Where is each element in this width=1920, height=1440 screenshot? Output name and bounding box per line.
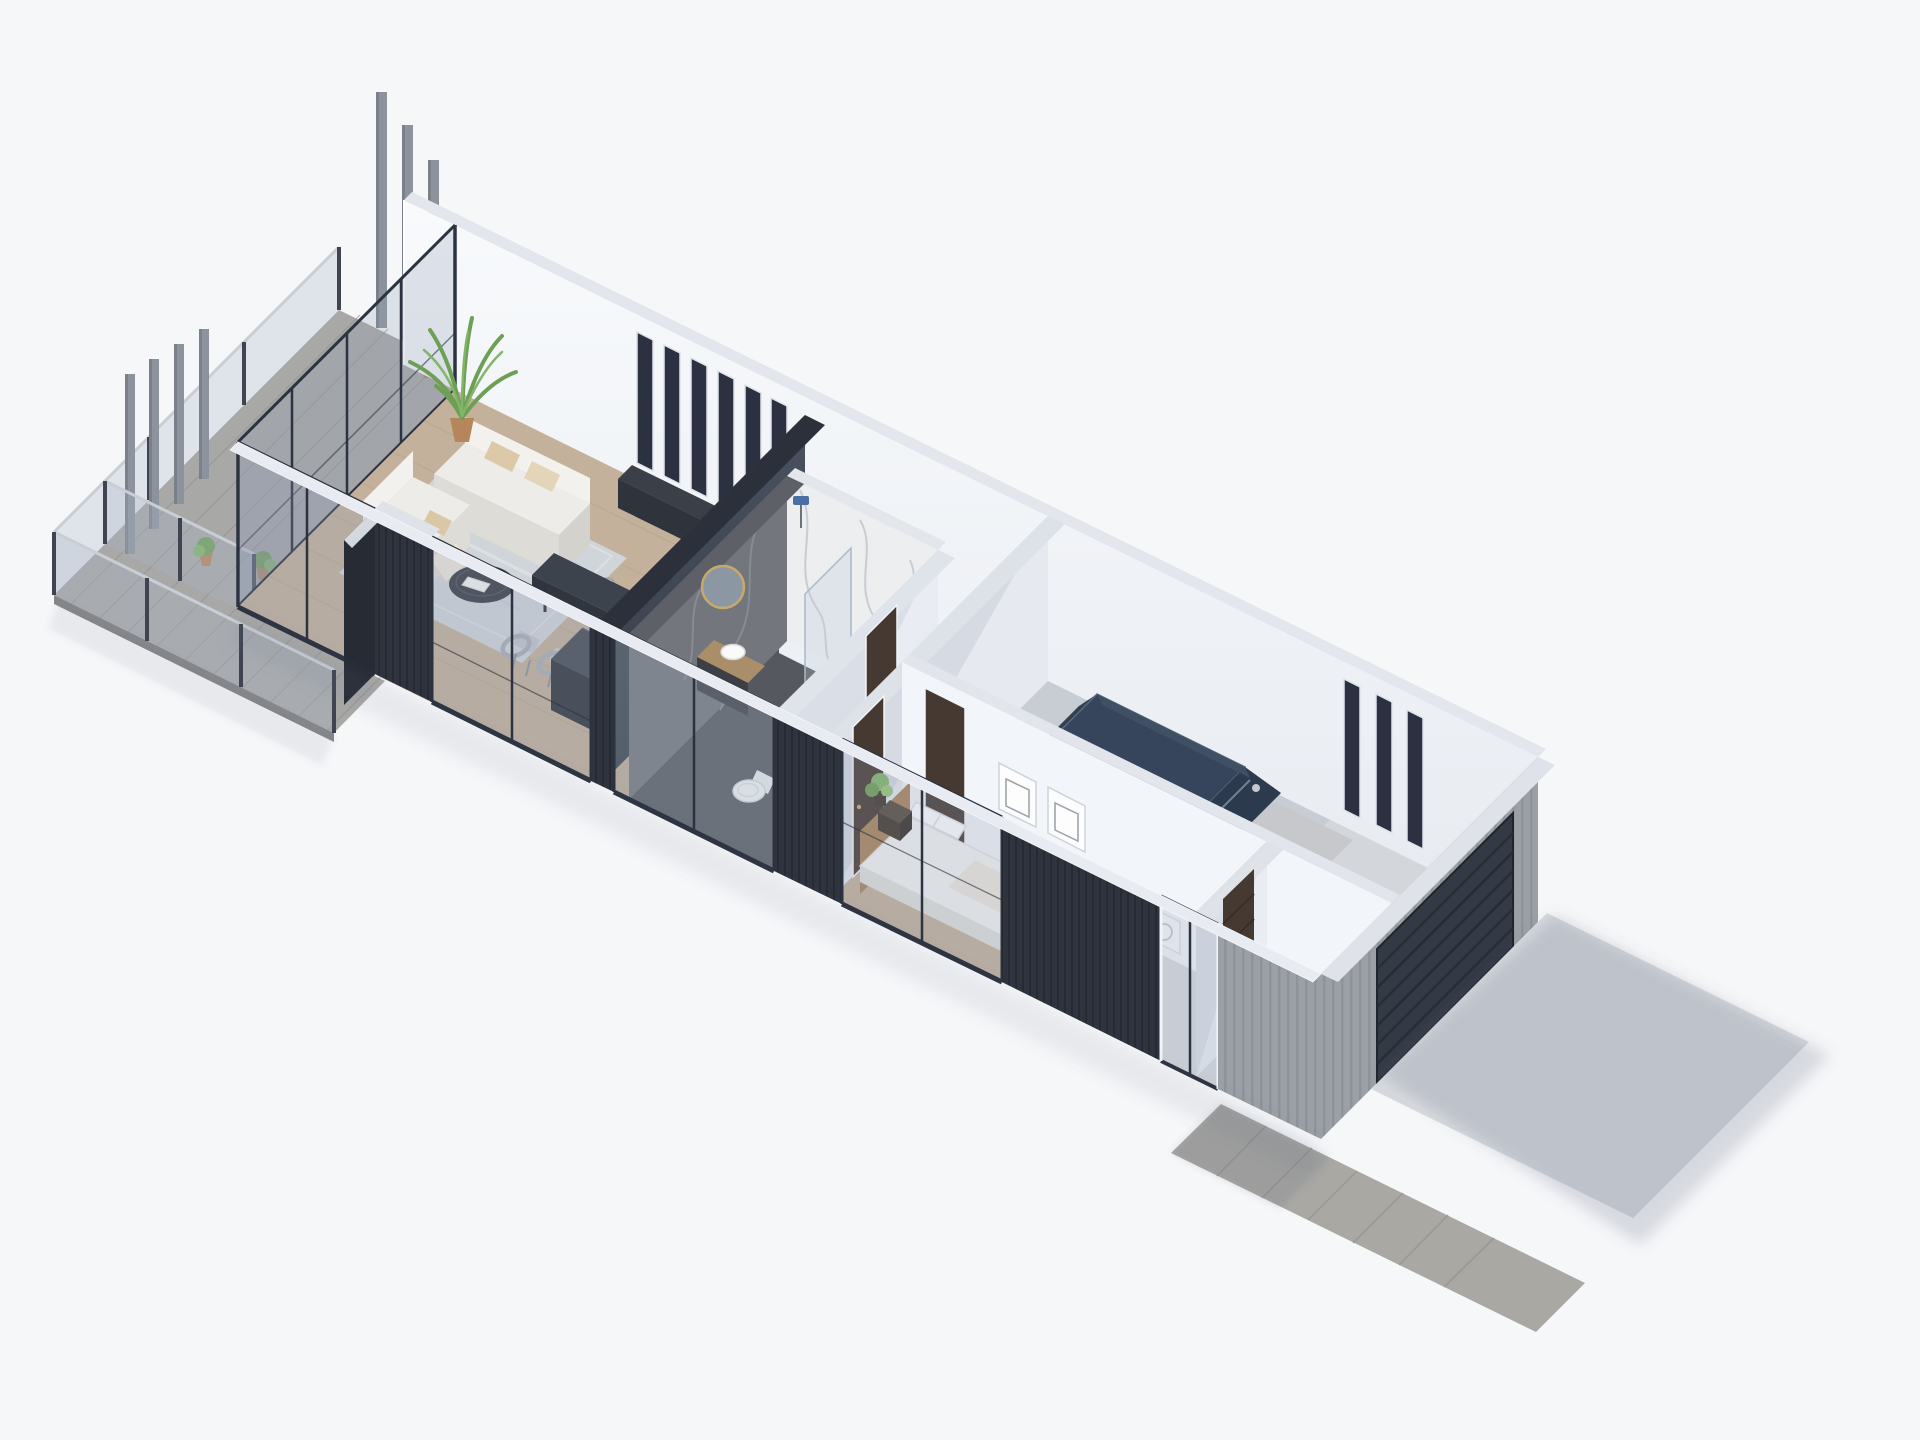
round-mirror (702, 566, 744, 608)
car-mirror (1252, 784, 1260, 792)
vessel-sink (721, 645, 745, 660)
floorplan-stage (0, 0, 1920, 1440)
floorplan-render (0, 0, 1920, 1440)
facade-cladding-sliver (591, 616, 614, 792)
